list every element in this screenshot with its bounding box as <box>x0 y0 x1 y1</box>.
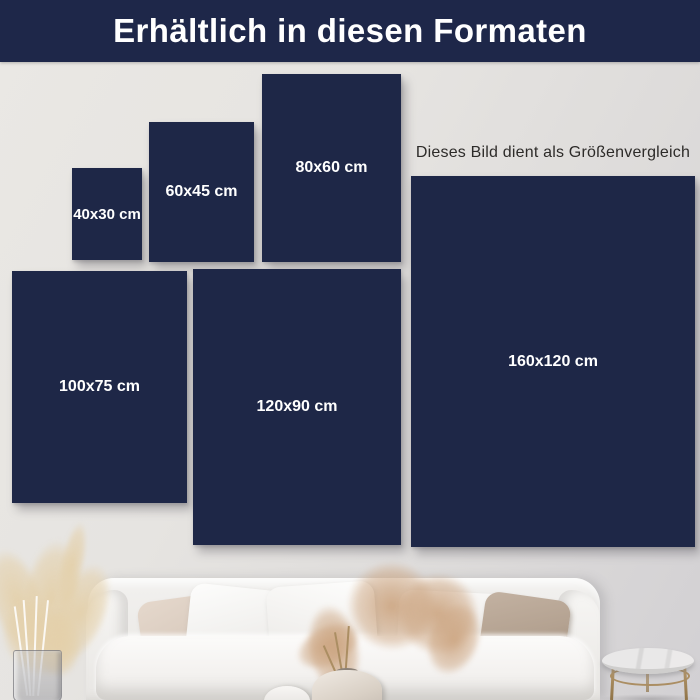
format-label-40x30: 40x30 cm <box>73 206 141 223</box>
format-label-80x60: 80x60 cm <box>295 159 367 177</box>
glass-vase <box>13 650 62 700</box>
format-panel-120x90: 120x90 cm <box>193 269 401 545</box>
header-bar: Erhältlich in diesen Formaten <box>0 0 700 62</box>
beige-vase <box>312 670 382 700</box>
size-comparison-note: Dieses Bild dient als Größenvergleich <box>405 144 700 162</box>
table-leg <box>683 664 688 700</box>
page-title: Erhältlich in diesen Formaten <box>113 12 587 50</box>
format-label-100x75: 100x75 cm <box>59 378 140 396</box>
side-table-top <box>602 648 694 674</box>
format-label-160x120: 160x120 cm <box>508 353 598 371</box>
size-comparison-graphic: Erhältlich in diesen Formaten Dieses Bil… <box>0 0 700 700</box>
format-panel-80x60: 80x60 cm <box>262 74 401 262</box>
format-panel-160x120: 160x120 cm <box>411 176 695 547</box>
format-panel-60x45: 60x45 cm <box>149 122 254 262</box>
format-panel-100x75: 100x75 cm <box>12 271 187 503</box>
format-panel-40x30: 40x30 cm <box>72 168 142 260</box>
format-label-120x90: 120x90 cm <box>257 398 338 416</box>
format-label-60x45: 60x45 cm <box>165 183 237 201</box>
